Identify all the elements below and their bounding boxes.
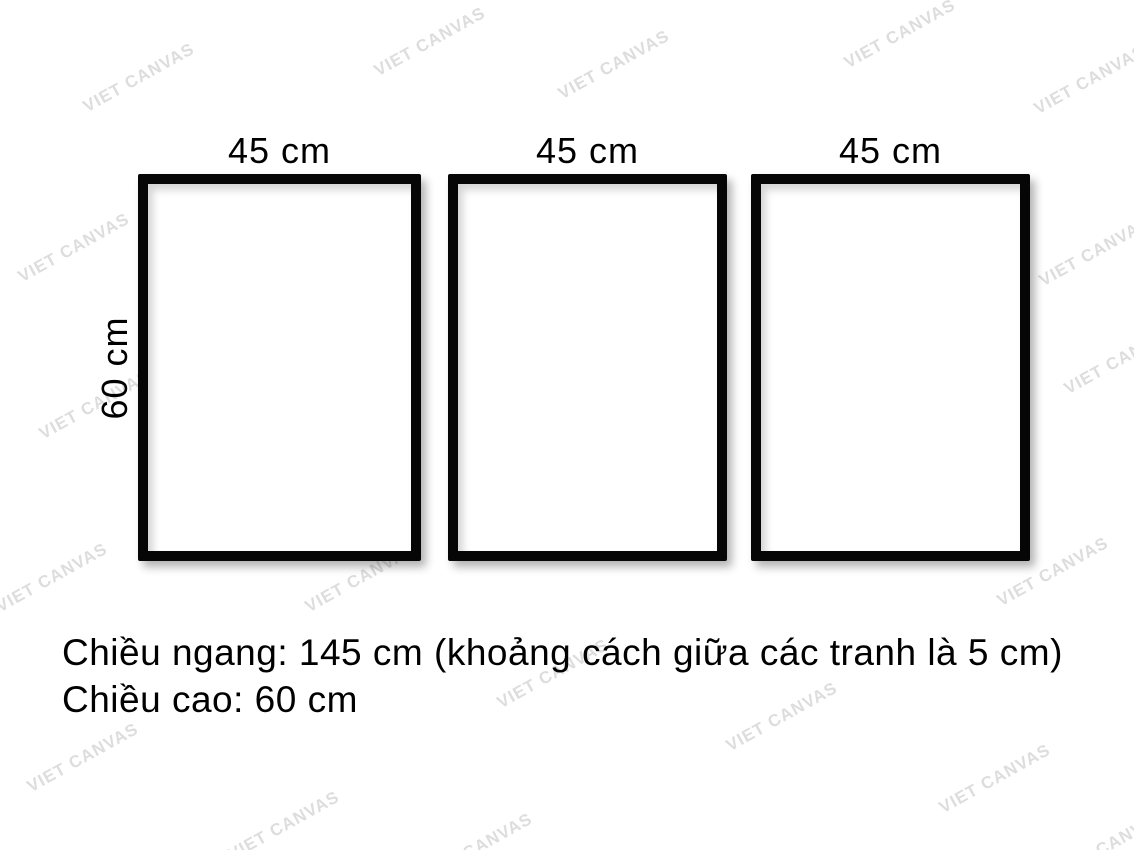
watermark-text: VIET CANVAS <box>1061 321 1134 399</box>
dimension-diagram: VIET CANVASVIET CANVASVIET CANVASVIET CA… <box>0 0 1134 850</box>
picture-frame-2 <box>448 174 727 561</box>
caption-line-vertical: Chiều cao: 60 cm <box>62 676 1063 723</box>
watermark-text: VIET CANVAS <box>841 0 959 73</box>
frame-height-label: 60 cm <box>94 316 136 419</box>
caption: Chiều ngang: 145 cm (khoảng cách giữa cá… <box>62 629 1063 723</box>
watermark-text: VIET CANVAS <box>80 39 198 117</box>
watermark-text: VIET CANVAS <box>1051 806 1134 850</box>
picture-frame-3 <box>751 174 1030 561</box>
watermark-text: VIET CANVAS <box>555 26 673 104</box>
watermark-text: VIET CANVAS <box>0 539 111 617</box>
watermark-text: VIET CANVAS <box>24 719 142 797</box>
frame-1-width-label: 45 cm <box>138 129 421 173</box>
watermark-text: VIET CANVAS <box>15 209 133 287</box>
watermark-text: VIET CANVAS <box>1036 213 1134 291</box>
watermark-text: VIET CANVAS <box>371 3 489 81</box>
frame-3-width-label: 45 cm <box>751 129 1030 173</box>
watermark-text: VIET CANVAS <box>225 787 343 850</box>
watermark-text: VIET CANVAS <box>418 809 536 850</box>
frame-2-width-label: 45 cm <box>448 129 727 173</box>
watermark-text: VIET CANVAS <box>1031 41 1134 119</box>
watermark-text: VIET CANVAS <box>936 740 1054 818</box>
caption-line-horizontal: Chiều ngang: 145 cm (khoảng cách giữa cá… <box>62 629 1063 676</box>
picture-frame-1 <box>138 174 421 561</box>
